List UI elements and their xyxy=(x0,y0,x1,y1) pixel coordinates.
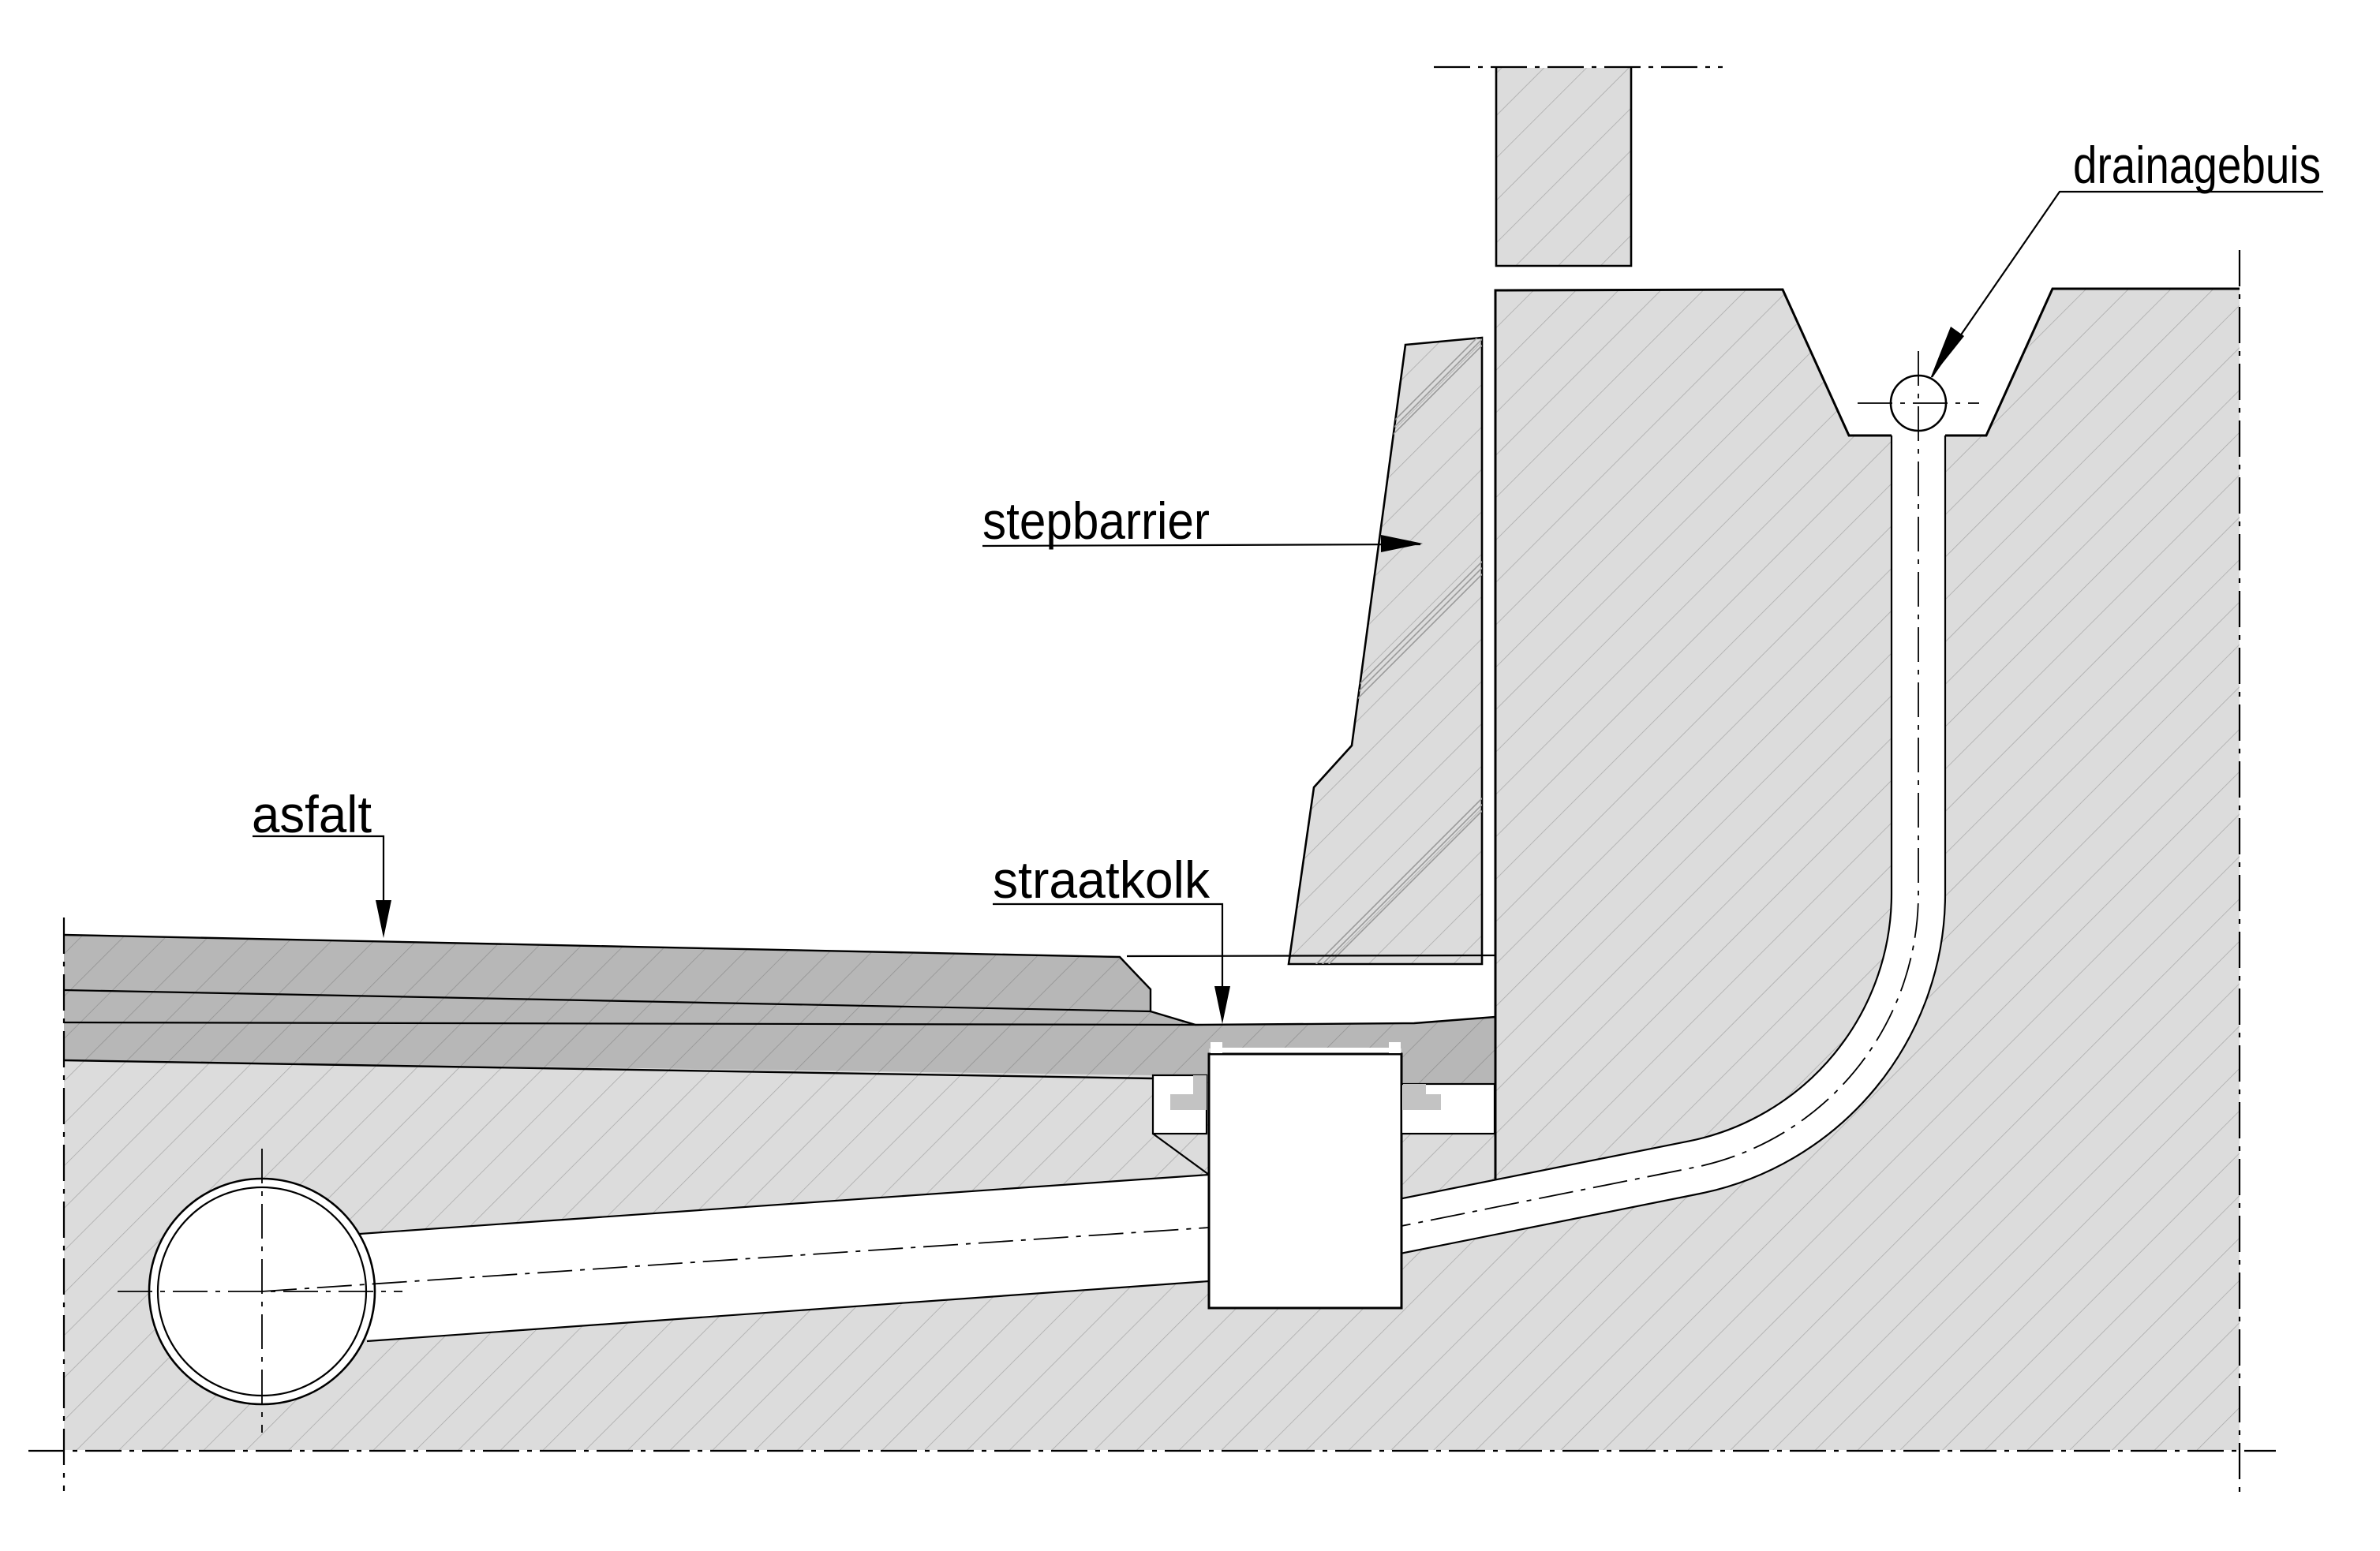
svg-text:stepbarrier: stepbarrier xyxy=(982,491,1210,550)
svg-text:straatkolk: straatkolk xyxy=(993,850,1211,909)
svg-text:drainagebuis: drainagebuis xyxy=(2073,136,2321,194)
svg-text:asfalt: asfalt xyxy=(252,785,372,843)
